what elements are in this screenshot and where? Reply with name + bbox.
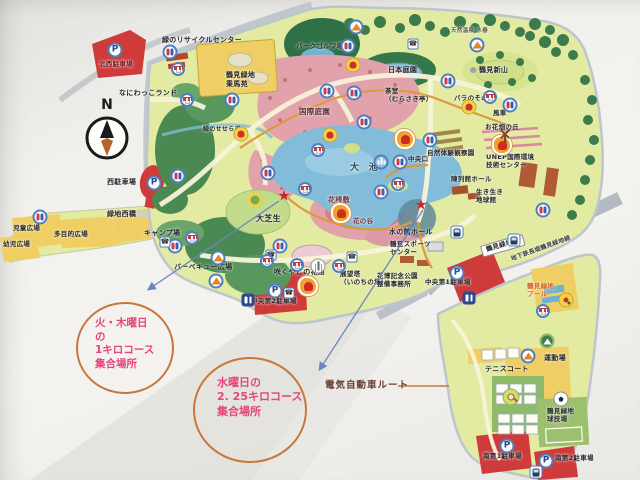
meeting-point-2-annotation: 水曜日の 2. 25キロコース 集合場所 — [193, 357, 307, 463]
meeting-point-1-annotation: 火・木曜日 の 1キロコース 集合場所 — [76, 302, 174, 394]
great-lawn — [226, 190, 290, 234]
park-map-photo: N 北西駐車場緑のリサイクルセンターなにわっこランド鶴見緑地 乗馬苑パークゴルフ… — [0, 0, 640, 480]
ev-route-legend-label: 電気自動車ルート — [325, 377, 409, 391]
compass-n-label: N — [101, 97, 113, 113]
west-plaza-strip — [0, 206, 164, 262]
map-base-art — [0, 0, 640, 480]
compass-rose: N — [84, 96, 130, 162]
